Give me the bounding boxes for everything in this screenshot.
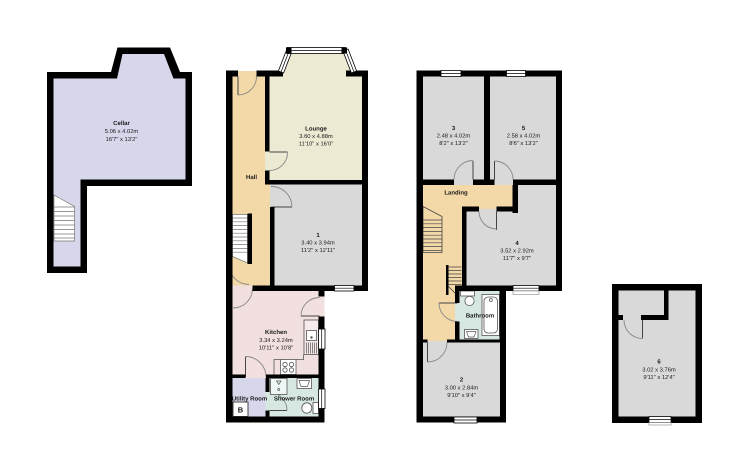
svg-text:9'11" x 12'4": 9'11" x 12'4" <box>643 374 674 381</box>
svg-text:3.52 x 2.92m: 3.52 x 2.92m <box>500 247 534 254</box>
svg-text:Bathroom: Bathroom <box>466 313 494 320</box>
svg-text:10'11" x 10'8": 10'11" x 10'8" <box>259 345 294 352</box>
svg-text:Cellar: Cellar <box>113 120 130 127</box>
svg-text:Landing: Landing <box>444 190 468 197</box>
svg-text:Lounge: Lounge <box>305 126 327 133</box>
svg-text:2.48 x 4.02m: 2.48 x 4.02m <box>437 133 471 140</box>
svg-text:Shower Room: Shower Room <box>274 396 314 403</box>
svg-text:3.60 x 4.88m: 3.60 x 4.88m <box>299 133 333 140</box>
svg-text:11'7" x 9'7": 11'7" x 9'7" <box>503 255 531 262</box>
svg-text:3.40 x 3.94m: 3.40 x 3.94m <box>301 240 335 247</box>
svg-text:5.06 x 4.02m: 5.06 x 4.02m <box>105 128 139 135</box>
svg-text:11'10" x 16'0": 11'10" x 16'0" <box>299 141 334 148</box>
svg-text:3.00 x 2.84m: 3.00 x 2.84m <box>445 384 479 391</box>
svg-text:Hall: Hall <box>246 174 257 181</box>
svg-text:2.58 x 4.02m: 2.58 x 4.02m <box>507 133 541 140</box>
svg-text:B: B <box>238 406 244 415</box>
svg-text:3.02 x 3.76m: 3.02 x 3.76m <box>642 366 676 373</box>
svg-text:16'7" x 13'2": 16'7" x 13'2" <box>106 136 138 143</box>
svg-text:11'2" x 12'11": 11'2" x 12'11" <box>301 247 335 254</box>
svg-text:8'2" x 13'2": 8'2" x 13'2" <box>439 140 468 147</box>
svg-text:3.34 x 3.24m: 3.34 x 3.24m <box>259 337 293 344</box>
svg-text:Utility Room: Utility Room <box>232 396 267 403</box>
svg-text:9'10" x 9'4": 9'10" x 9'4" <box>447 392 476 399</box>
svg-text:Kitchen: Kitchen <box>265 329 287 336</box>
svg-text:8'6" x 13'2": 8'6" x 13'2" <box>509 140 538 147</box>
